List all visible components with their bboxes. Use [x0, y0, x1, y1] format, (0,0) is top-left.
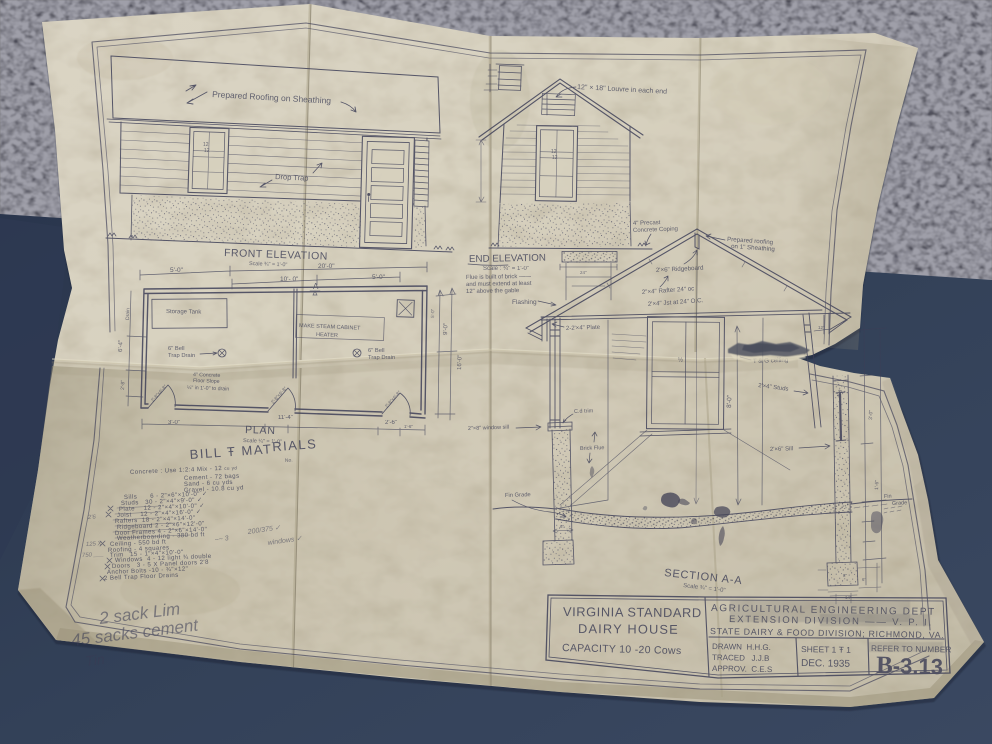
svg-text:Fin Grade: Fin Grade — [505, 492, 531, 499]
svg-text:12": 12" — [818, 325, 825, 330]
svg-text:½: ½ — [678, 357, 683, 364]
svg-text:Drop Trap: Drop Trap — [275, 172, 309, 183]
svg-text:5'-0": 5'-0" — [170, 267, 184, 274]
svg-text:HEATER: HEATER — [316, 332, 338, 339]
svg-text:125 X: 125 X — [86, 541, 103, 548]
svg-text:DRAWN H.H.G.: DRAWN H.H.G. — [712, 642, 771, 652]
svg-text:2'-6": 2'-6" — [385, 420, 397, 426]
svg-text:and must extend at least: and must extend at least — [466, 281, 532, 288]
svg-text:VIRGINIA STANDARD: VIRGINIA STANDARD — [563, 604, 702, 620]
svg-text:2'×6" Sill: 2'×6" Sill — [770, 446, 793, 453]
svg-text:Flashing: Flashing — [512, 299, 537, 306]
svg-text:24": 24" — [580, 270, 587, 275]
svg-text:4" Precast: 4" Precast — [633, 220, 661, 227]
svg-text:6" Bell: 6" Bell — [168, 346, 185, 352]
svg-text:2-2'×4" Plate: 2-2'×4" Plate — [566, 325, 601, 332]
svg-text:Tin: Tin — [84, 651, 105, 669]
svg-text:C.d trim: C.d trim — [574, 408, 594, 415]
svg-text:APPROV. C.E.S: APPROV. C.E.S — [712, 664, 772, 674]
svg-text:Grade: Grade — [892, 500, 908, 507]
svg-text:12: 12 — [204, 148, 210, 154]
svg-text:B-3.13: B-3.13 — [876, 652, 943, 680]
svg-text:20'-0": 20'-0" — [318, 263, 335, 270]
svg-text:DEC. 1935: DEC. 1935 — [801, 658, 851, 670]
svg-text:Trap Drain: Trap Drain — [168, 353, 195, 359]
svg-text:16'-0": 16'-0" — [457, 355, 464, 370]
svg-text:SHEET 1 Ŧ 1: SHEET 1 Ŧ 1 — [801, 644, 851, 655]
svg-text:5'-0": 5'-0" — [372, 274, 386, 281]
svg-text:Flue is built of brick ——: Flue is built of brick —— — [466, 274, 531, 281]
svg-text:12" above the gable: 12" above the gable — [466, 288, 520, 295]
svg-text:3'-0": 3'-0" — [168, 420, 180, 426]
svg-text:Floor Slope: Floor Slope — [193, 378, 220, 385]
svg-text:5'-0": 5'-0" — [430, 308, 435, 318]
svg-text:11'-4": 11'-4" — [278, 415, 293, 421]
svg-text:TRACED J.J.B: TRACED J.J.B — [712, 653, 769, 663]
svg-text:Brick Flue: Brick Flue — [580, 445, 605, 452]
svg-text:DAIRY HOUSE: DAIRY HOUSE — [578, 621, 679, 637]
svg-text:6'-4": 6'-4" — [118, 340, 124, 352]
svg-text:1'-6": 1'-6" — [404, 424, 413, 429]
svg-text:Scale : ¾" = 1'-0": Scale : ¾" = 1'-0" — [483, 266, 529, 272]
svg-text:Trap Drain: Trap Drain — [368, 355, 395, 361]
svg-text:Fin: Fin — [884, 494, 892, 500]
svg-text:END ELEVATION: END ELEVATION — [469, 253, 546, 265]
svg-text:Drain: Drain — [125, 308, 131, 320]
svg-text:Storage Tank: Storage Tank — [166, 309, 202, 316]
svg-text:9'-0": 9'-0" — [443, 323, 449, 335]
svg-text:6" Bell: 6" Bell — [368, 348, 385, 354]
svg-text:8": 8" — [843, 573, 847, 578]
svg-text:3'-0": 3'-0" — [868, 410, 875, 420]
svg-text:2'-8": 2'-8" — [120, 380, 126, 390]
svg-text:750 ___: 750 ___ — [82, 552, 104, 559]
svg-text:6": 6" — [862, 577, 866, 582]
svg-text:2'6: 2'6 — [87, 515, 97, 521]
svg-text:12: 12 — [552, 155, 558, 161]
svg-text:8'-0": 8'-0" — [726, 394, 733, 408]
svg-text:10'- 0": 10'- 0" — [280, 276, 299, 283]
svg-text:6": 6" — [560, 524, 565, 529]
svg-text:PLAN: PLAN — [245, 424, 276, 437]
svg-text:1'-6": 1'-6" — [874, 480, 881, 490]
svg-text:No.: No. — [285, 457, 293, 464]
